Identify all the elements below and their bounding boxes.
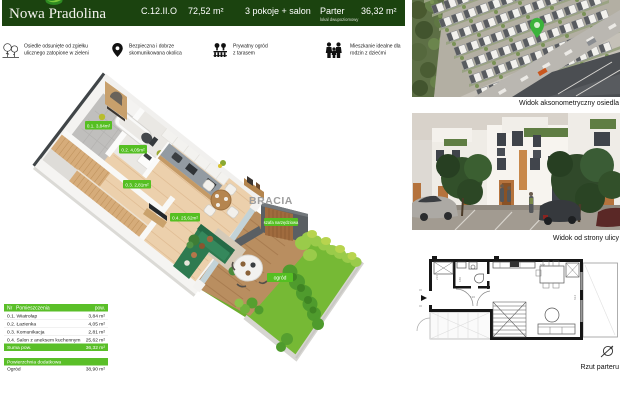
svg-text:rodzin z dziećmi: rodzin z dziećmi: [350, 51, 386, 57]
svg-text:C.12.II.O: C.12.II.O: [141, 6, 177, 16]
svg-text:Rzut parteru: Rzut parteru: [580, 364, 619, 371]
svg-text:72,52 m²: 72,52 m²: [188, 6, 224, 16]
svg-text:Mieszkanie idealne dla: Mieszkanie idealne dla: [350, 44, 401, 50]
svg-text:szafa narzędziowa: szafa narzędziowa: [264, 220, 299, 225]
svg-text:0.4. Salon z aneksem kuchennym: 0.4. Salon z aneksem kuchennym: [7, 338, 80, 344]
svg-text:skomunikowana okolica: skomunikowana okolica: [129, 51, 182, 57]
svg-text:z tarasem: z tarasem: [233, 51, 255, 57]
svg-text:Widok aksonometryczny osiedla: Widok aksonometryczny osiedla: [519, 100, 619, 107]
svg-text:ulicznego zatopione w zieleni: ulicznego zatopione w zieleni: [24, 51, 89, 57]
svg-text:2,81 m²: 2,81 m²: [88, 330, 105, 336]
svg-text:0.4. 25,62m²: 0.4. 25,62m²: [172, 216, 198, 221]
svg-text:pow.: pow.: [95, 306, 105, 312]
svg-text:Widok od strony ulicy: Widok od strony ulicy: [553, 235, 620, 242]
svg-text:216: 216: [435, 275, 439, 280]
svg-text:614: 614: [573, 295, 577, 300]
svg-text:36,32 m²: 36,32 m²: [361, 6, 397, 16]
svg-text:608: 608: [540, 263, 545, 267]
svg-text:38,90 m²: 38,90 m²: [86, 367, 106, 373]
svg-text:BRACIA: BRACIA: [249, 195, 293, 207]
svg-text:Powierzchnia dodatkowa: Powierzchnia dodatkowa: [7, 360, 61, 366]
svg-text:Suma pow.: Suma pow.: [7, 345, 31, 351]
svg-text:0.3. Komunikacja: 0.3. Komunikacja: [7, 330, 45, 336]
svg-text:Prywatny ogród: Prywatny ogród: [233, 44, 268, 50]
svg-text:Osiedle odsunięte od zgiełku: Osiedle odsunięte od zgiełku: [24, 44, 88, 50]
svg-text:0.2. Łazienka: 0.2. Łazienka: [7, 322, 36, 328]
svg-text:120: 120: [470, 295, 475, 299]
svg-text:Pomieszczenia: Pomieszczenia: [16, 306, 50, 312]
svg-text:Parter: Parter: [320, 6, 345, 16]
svg-text:36,32 m²: 36,32 m²: [86, 345, 106, 351]
svg-text:4,05 m²: 4,05 m²: [88, 322, 105, 328]
svg-text:Bezpieczna i dobrze: Bezpieczna i dobrze: [129, 44, 174, 50]
svg-text:0.1. Wiatrołap: 0.1. Wiatrołap: [7, 314, 37, 320]
svg-text:0.3. 2,81m²: 0.3. 2,81m²: [125, 183, 149, 188]
svg-text:3,84 m²: 3,84 m²: [88, 314, 105, 320]
svg-text:ogród: ogród: [274, 276, 287, 282]
svg-text:0.2. 4,05m²: 0.2. 4,05m²: [121, 148, 145, 153]
svg-text:lokal dwupoziomowy: lokal dwupoziomowy: [320, 17, 359, 22]
svg-text:Nowa Pradolina: Nowa Pradolina: [9, 6, 106, 22]
svg-text:180: 180: [458, 277, 462, 282]
svg-text:Ogród: Ogród: [7, 367, 21, 373]
svg-text:0.1. 3,84m²: 0.1. 3,84m²: [87, 124, 111, 129]
svg-text:3 pokoje + salon: 3 pokoje + salon: [245, 6, 311, 16]
svg-text:25,62 m²: 25,62 m²: [86, 338, 106, 344]
svg-text:Nr: Nr: [7, 306, 13, 312]
